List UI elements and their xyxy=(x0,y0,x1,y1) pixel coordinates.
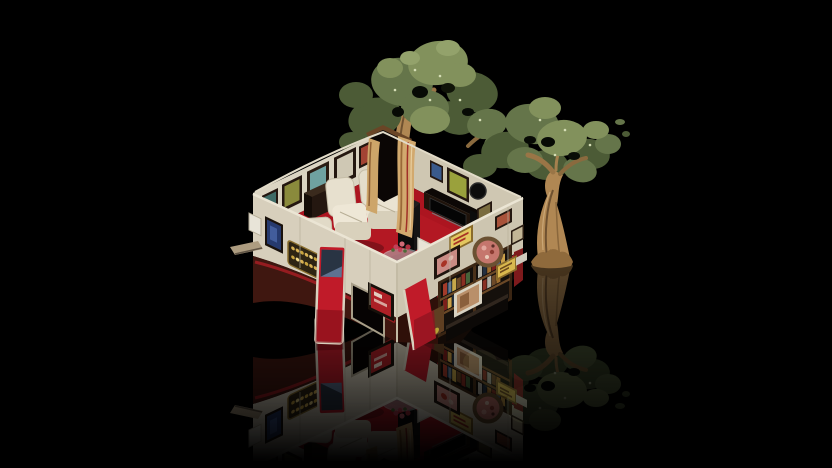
diorama-stage xyxy=(0,0,832,468)
diorama-render xyxy=(0,0,832,468)
